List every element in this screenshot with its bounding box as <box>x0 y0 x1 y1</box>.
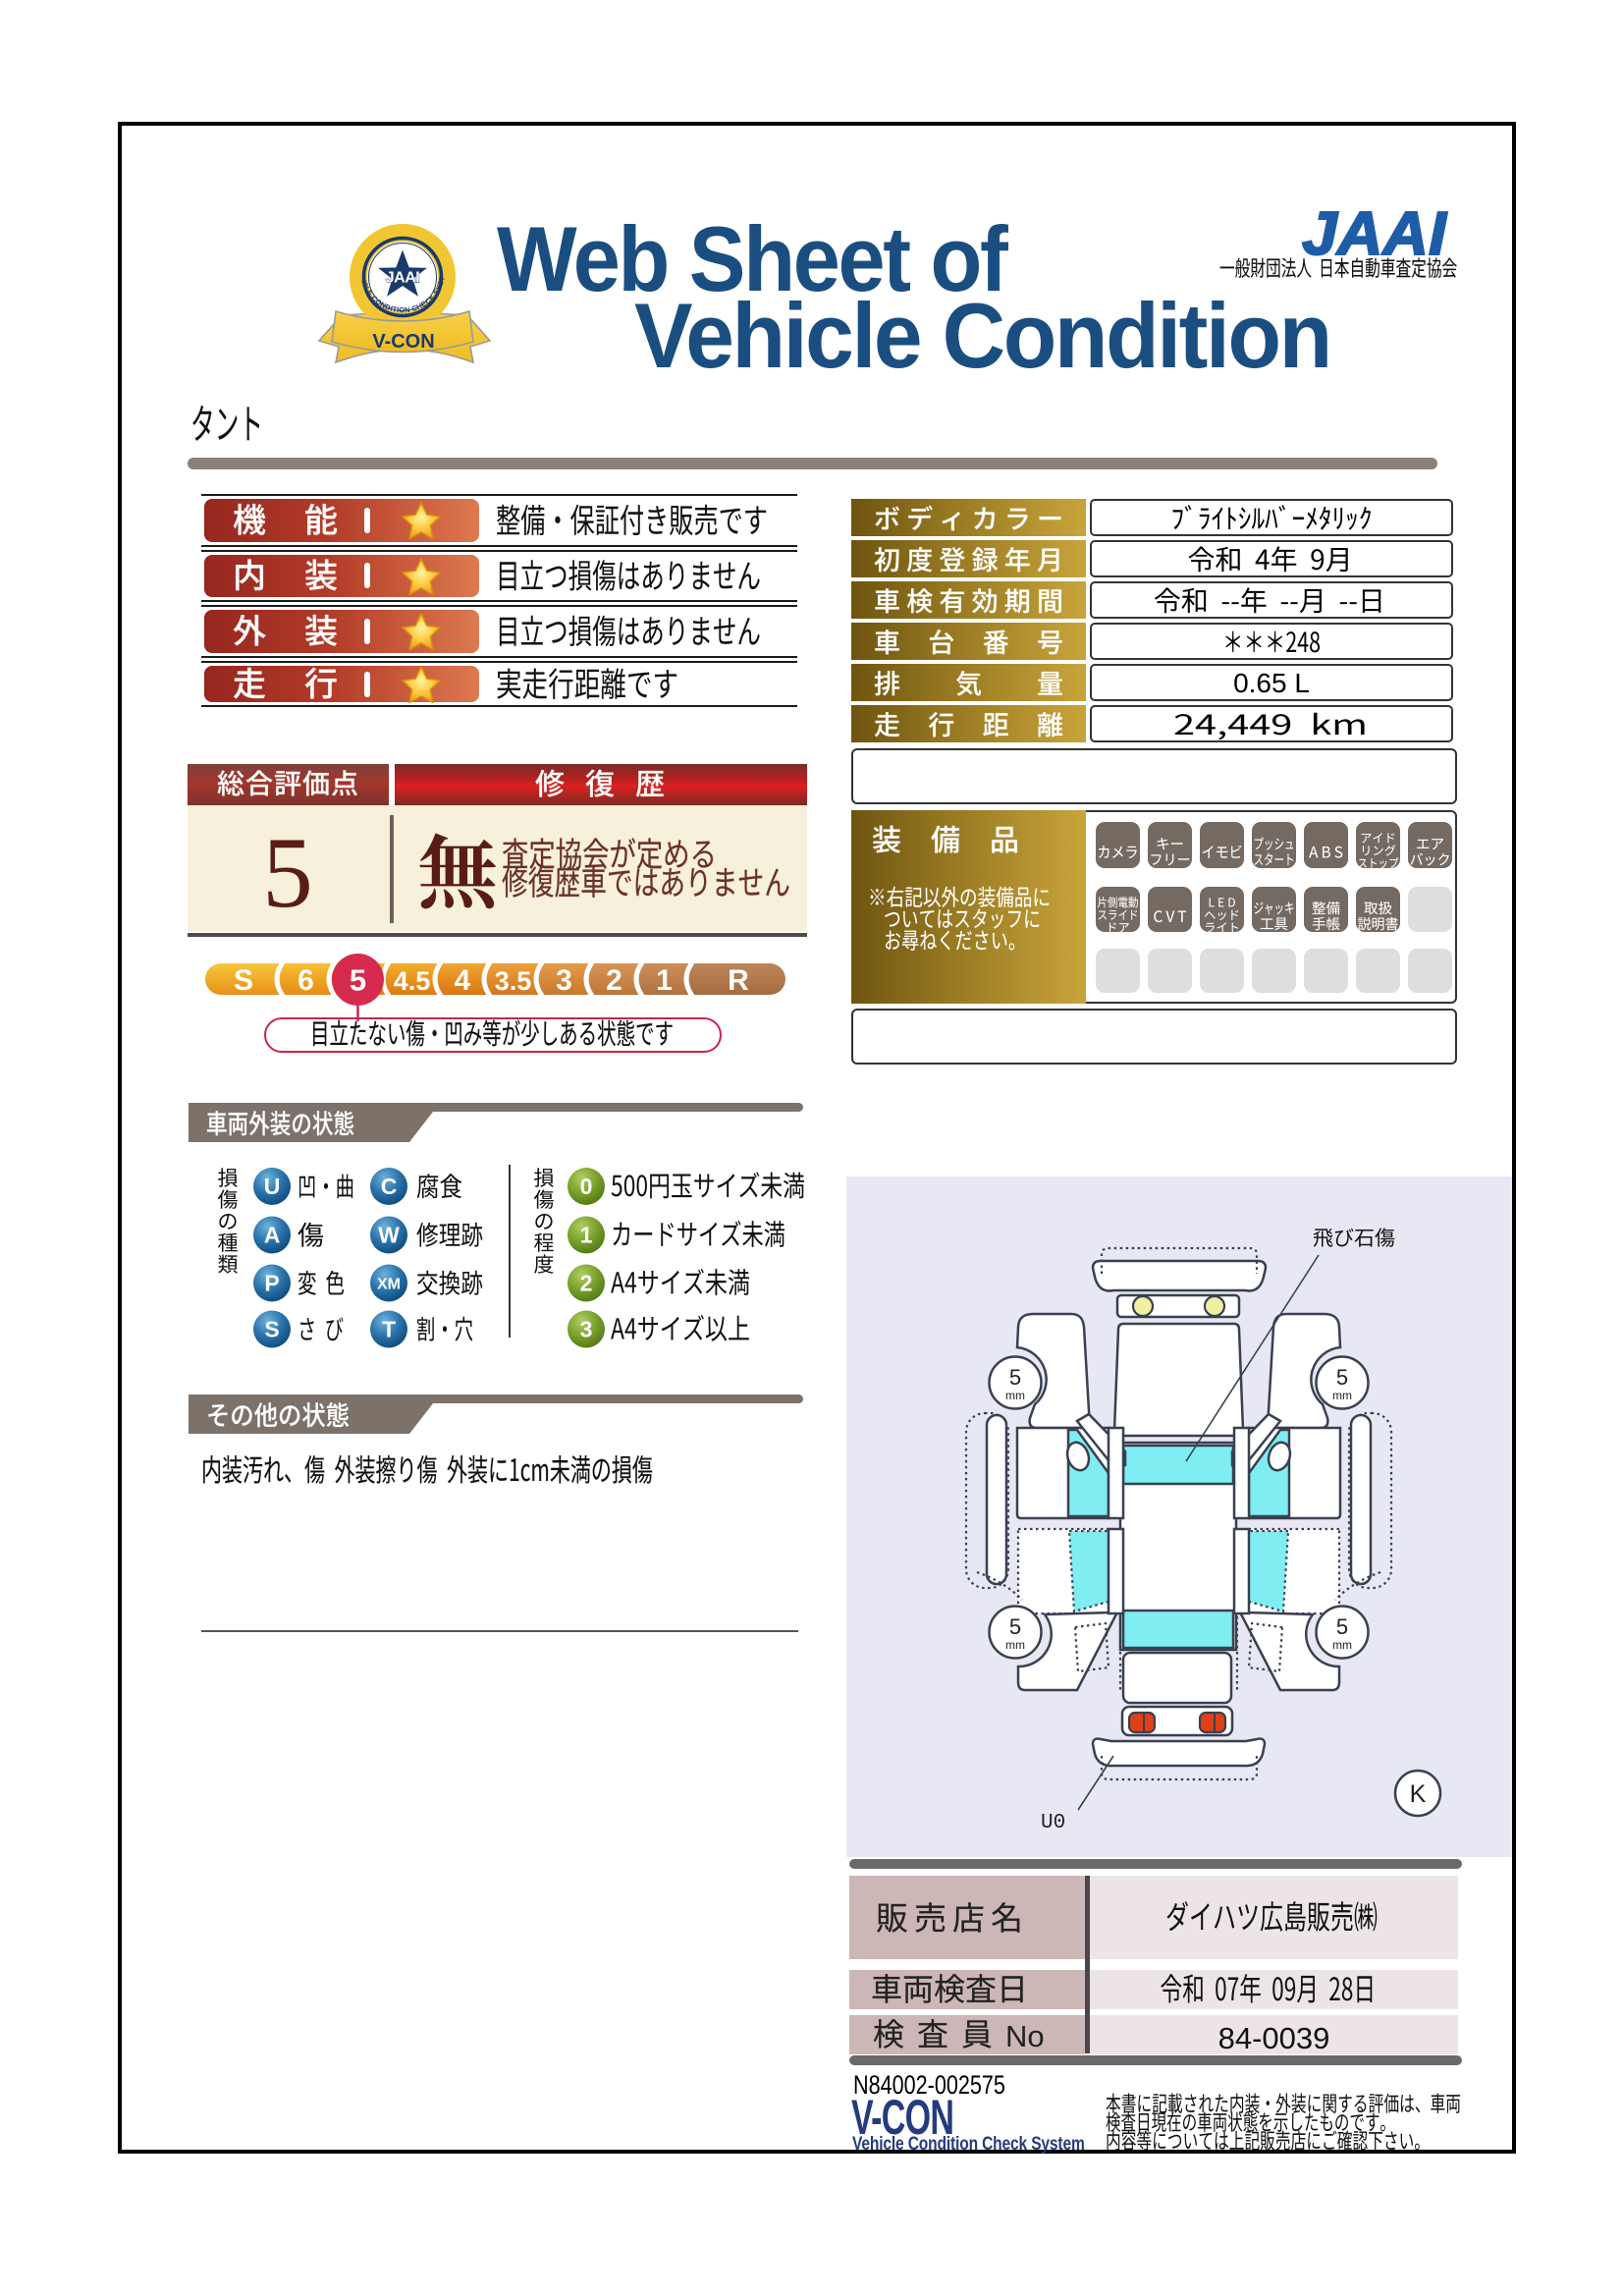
svg-text:0: 0 <box>580 1174 593 1199</box>
svg-text:5: 5 <box>1336 1365 1348 1390</box>
svg-text:5: 5 <box>1336 1614 1348 1639</box>
svg-text:1: 1 <box>580 1223 593 1248</box>
svg-text:mm: mm <box>1005 1638 1025 1652</box>
svg-text:S: S <box>264 1317 279 1342</box>
svg-text:R: R <box>728 964 749 997</box>
svg-text:P: P <box>264 1271 279 1296</box>
svg-text:K: K <box>1410 1780 1427 1808</box>
svg-text:5: 5 <box>1009 1614 1021 1639</box>
svg-text:4.5: 4.5 <box>394 966 431 996</box>
svg-text:3.5: 3.5 <box>495 966 532 996</box>
svg-text:T: T <box>382 1317 396 1342</box>
svg-text:5: 5 <box>350 963 366 998</box>
svg-text:3: 3 <box>556 964 572 997</box>
svg-text:S: S <box>234 964 253 997</box>
svg-text:1: 1 <box>656 964 673 997</box>
svg-text:C: C <box>381 1174 398 1199</box>
svg-text:W: W <box>378 1223 400 1248</box>
svg-text:mm: mm <box>1332 1638 1352 1652</box>
svg-text:mm: mm <box>1005 1389 1025 1402</box>
svg-text:3: 3 <box>580 1317 593 1342</box>
svg-text:2: 2 <box>606 964 622 997</box>
svg-text:5: 5 <box>1009 1365 1021 1390</box>
svg-text:6: 6 <box>298 964 314 997</box>
svg-text:2: 2 <box>580 1271 593 1296</box>
svg-text:A: A <box>264 1223 281 1248</box>
svg-text:mm: mm <box>1332 1389 1352 1402</box>
svg-text:XM: XM <box>377 1277 401 1293</box>
svg-text:U: U <box>264 1174 281 1199</box>
svg-text:4: 4 <box>455 964 471 997</box>
